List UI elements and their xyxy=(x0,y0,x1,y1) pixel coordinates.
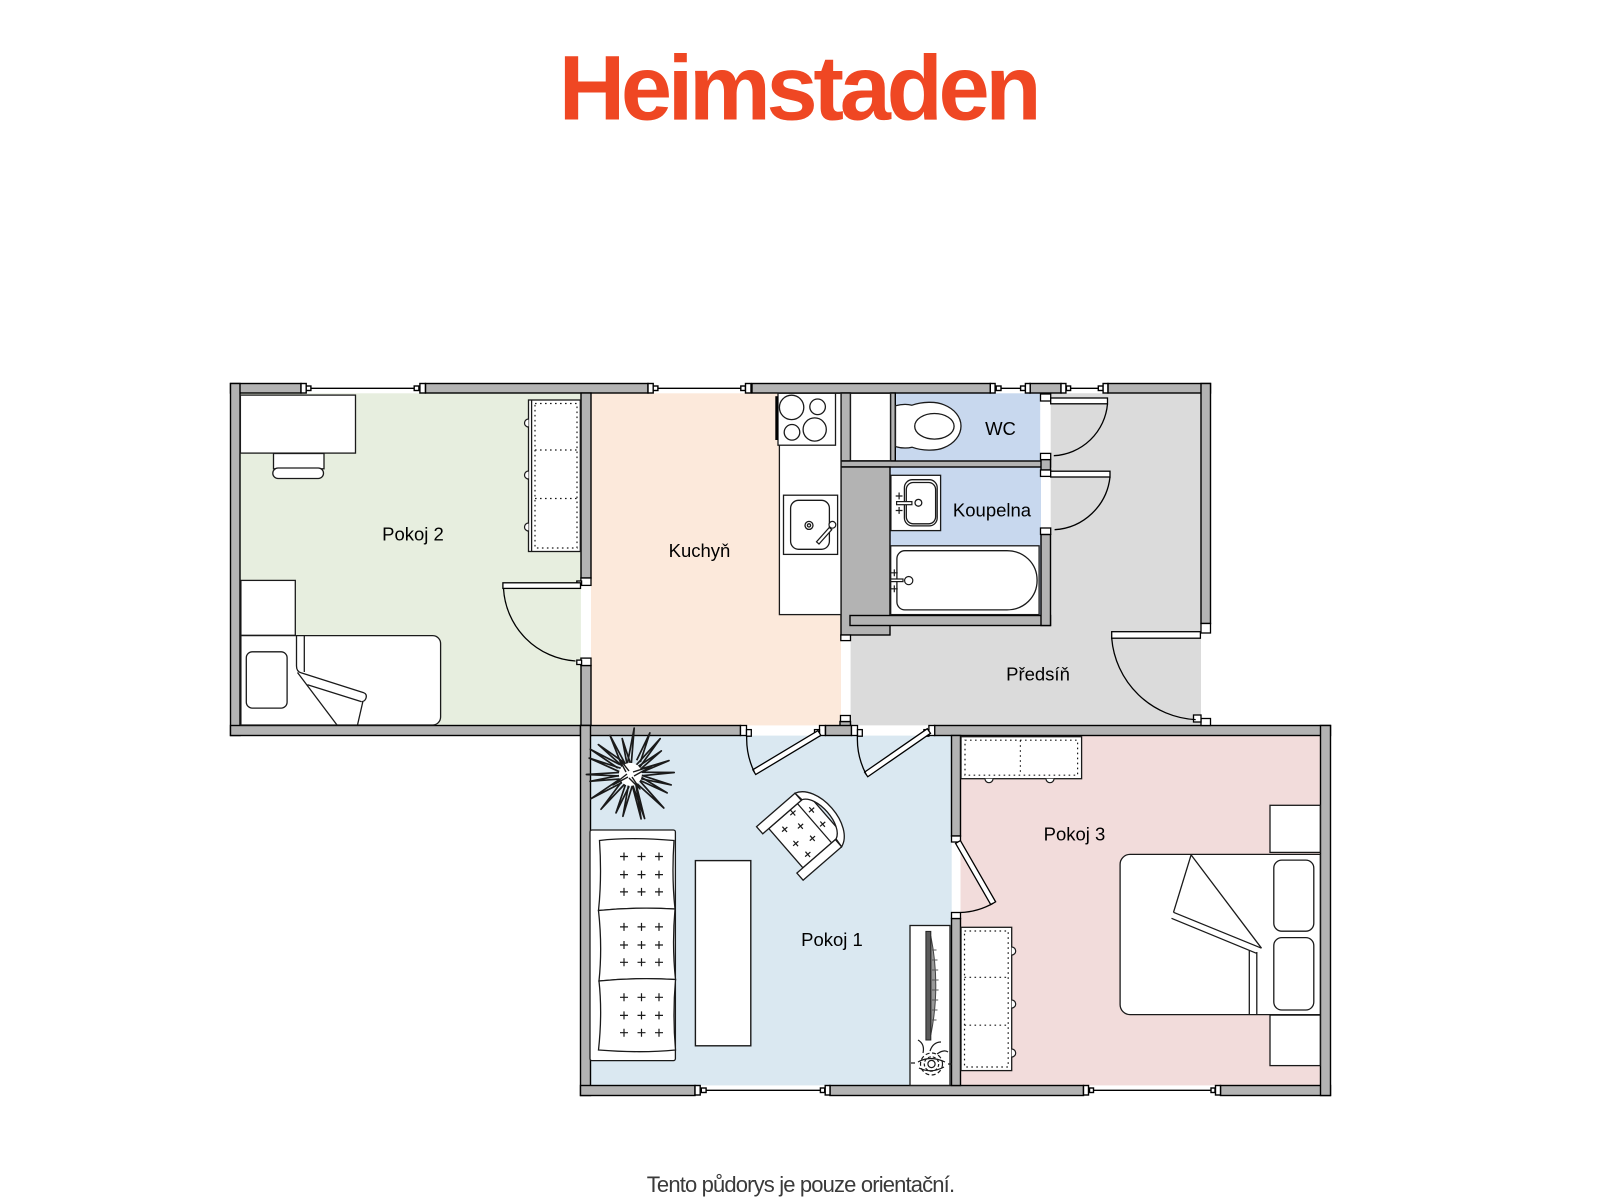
svg-text:Pokoj 3: Pokoj 3 xyxy=(1044,824,1106,845)
svg-text:Heimstaden: Heimstaden xyxy=(559,38,1038,140)
svg-text:Pokoj 1: Pokoj 1 xyxy=(801,929,863,950)
svg-text:WC: WC xyxy=(985,418,1016,439)
svg-text:Koupelna: Koupelna xyxy=(953,500,1032,521)
svg-text:Kuchyň: Kuchyň xyxy=(669,540,731,561)
svg-text:Předsíň: Předsíň xyxy=(1006,664,1070,685)
svg-text:Pokoj 2: Pokoj 2 xyxy=(382,524,444,545)
svg-text:Tento půdorys je pouze orienta: Tento půdorys je pouze orientační. xyxy=(647,1172,954,1197)
